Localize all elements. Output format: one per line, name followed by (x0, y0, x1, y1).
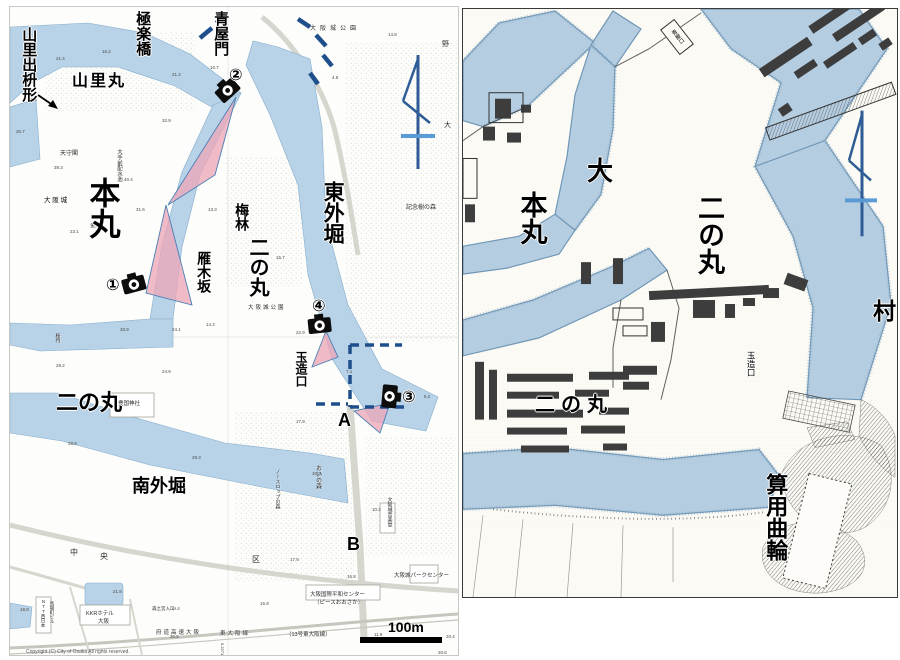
spot-height: 21.4 (56, 56, 65, 61)
spot-height: 16.9 (260, 601, 269, 606)
scale-label: 100m (388, 619, 442, 635)
spot-height: 16.2 (102, 49, 111, 54)
spot-height: 10.2 (372, 507, 381, 512)
map-tiny-label: （ピースおおさか） (314, 600, 363, 606)
historical-map-panel: 大 本丸 二の丸 二の丸 玉造口 算用曲輪 村 青屋口 (462, 8, 898, 598)
label-gangizaka: 雁木坂 (196, 251, 211, 293)
camera-icon (378, 383, 404, 411)
label-honmaru-hist: 本丸 (513, 191, 549, 245)
label-tamatsukuri-guchi: 玉造口 (294, 351, 307, 387)
label-bairin: 梅林 (234, 203, 249, 231)
spot-height: 28.2 (56, 363, 65, 368)
map-tiny-label: 大阪城パークセンター (394, 573, 449, 579)
historical-map-base (463, 9, 897, 597)
modern-map-panel: 山里出枡形 極楽橋 山里丸 青屋門 本丸 大 阪 城 東外堀 梅林 二の丸 雁木… (9, 6, 459, 656)
spot-height: 31.6 (136, 207, 145, 212)
map-tiny-label: 中 (70, 549, 78, 558)
spot-height: 13.3 (208, 207, 217, 212)
spot-height: 21.2 (172, 72, 181, 77)
label-mura: 村 (873, 299, 896, 324)
label-dai: 大 (587, 157, 613, 185)
map-tiny-label: 大阪城公園 (310, 26, 360, 33)
map-tiny-label: 大阪 (98, 619, 109, 625)
spot-height: 16.8 (347, 574, 356, 579)
label-aoya-mon: 青屋門 (212, 11, 228, 56)
south-inner-moat (10, 319, 173, 351)
label-tamatsukuri-hist: 玉造口 (746, 351, 755, 377)
spot-height: 40.4 (124, 177, 133, 182)
spot-height: 17.8 (296, 419, 305, 424)
label-osakajo: 大 阪 城 (44, 197, 67, 204)
map-tiny-label: おいの森 (314, 465, 321, 489)
spot-height: 18.8 (20, 607, 29, 612)
label-honmaru: 本丸 (78, 177, 125, 239)
spot-height: 28.9 (68, 441, 77, 446)
scale-bar: 100m (360, 619, 442, 643)
label-yamazato-maru: 山里丸 (72, 73, 126, 90)
spot-height: 14.8 (388, 32, 397, 37)
figure-root: 山里出枡形 極楽橋 山里丸 青屋門 本丸 大 阪 城 東外堀 梅林 二の丸 雁木… (0, 0, 900, 660)
spot-height: 20.6 (438, 650, 447, 655)
camera-number-2: ② (229, 65, 243, 85)
spot-height: 21.8 (113, 589, 122, 594)
map-tiny-label: 大阪城公園 (248, 305, 286, 311)
spot-height: 20.4 (446, 634, 455, 639)
label-minami-sotobori: 南外堀 (132, 477, 186, 496)
spot-height: 29.3 (192, 455, 201, 460)
map-tiny-label: 府道高速大阪 (156, 630, 201, 636)
label-sanyo-kuruwa: 算用曲輪 (763, 473, 788, 561)
spot-height: 14.2 (206, 322, 215, 327)
map-tiny-label: 大阪城音楽堂 (386, 497, 392, 527)
map-tiny-label: 記念樹の森 (406, 205, 436, 212)
spot-height: 24.9 (162, 369, 171, 374)
map-tiny-label: 森之宮入口 (152, 607, 175, 612)
map-tiny-label: 野 (442, 41, 449, 49)
map-tiny-label: 5.2271 (220, 643, 224, 655)
spot-height: 39.3 (54, 165, 63, 170)
map-tiny-label: KKRホテル (86, 611, 114, 617)
map-tiny-label: 馬場町ビル (49, 601, 54, 624)
spot-height: 7.1 (346, 369, 352, 374)
label-point-a: A (338, 411, 351, 430)
label-point-b: B (347, 535, 360, 554)
south-moat (463, 448, 779, 516)
map-tiny-label: NTT西日本 (40, 599, 45, 628)
view-cone-2 (168, 97, 236, 205)
map-tiny-label: 区 (252, 556, 260, 565)
label-ninomaru-center: 二の丸 (246, 237, 268, 297)
map-tiny-label: 大阪国際平和センター (310, 592, 365, 598)
spot-height: 22.9 (296, 330, 305, 335)
spot-height: 4.5 (332, 75, 338, 80)
spot-height: 24.1 (172, 327, 181, 332)
modern-map-base (10, 7, 458, 655)
label-higashi-sotobori: 東外堀 (320, 181, 344, 244)
spot-height: 32.9 (162, 118, 171, 123)
map-tiny-label: ノースロップの森 (274, 469, 280, 509)
spot-height: 25.7 (16, 129, 25, 134)
map-tiny-label: （13号東大阪線） (286, 632, 331, 638)
spot-height: 10.7 (210, 65, 219, 70)
spot-height: 33.9 (120, 327, 129, 332)
label-ninomaru-west-hist: 二の丸 (535, 395, 613, 417)
camera-number-1: ① (106, 275, 120, 295)
map-tiny-label: 大 (444, 122, 451, 130)
label-aoya-guchi: 青屋口 (669, 28, 685, 46)
map-tiny-label: 東大阪線 (220, 631, 250, 637)
map-tiny-label: 央 (100, 553, 108, 562)
label-ninomaru-south: 二の丸 (56, 391, 122, 415)
spot-height: 15.7 (276, 255, 285, 260)
pond-small-1 (85, 583, 123, 605)
label-gokurakubashi: 極楽橋 (134, 11, 150, 56)
map-tiny-label: 桜門 (54, 333, 60, 343)
copyright-text: Copyright (C) City of Osaka All rights r… (26, 649, 130, 655)
west-moat-strip (10, 99, 40, 167)
label-yamazato-demasugata: 山里出枡形 (20, 27, 36, 102)
camera-number-4: ④ (312, 296, 326, 316)
map-tiny-label: 天守閣 (60, 151, 78, 158)
scale-bar-line (360, 637, 442, 643)
spot-height: 5.2 (424, 394, 430, 399)
spot-height: 17.9 (290, 557, 299, 562)
camera-number-3: ③ (402, 387, 416, 407)
label-ninomaru-east-hist: 二の丸 (693, 194, 724, 275)
